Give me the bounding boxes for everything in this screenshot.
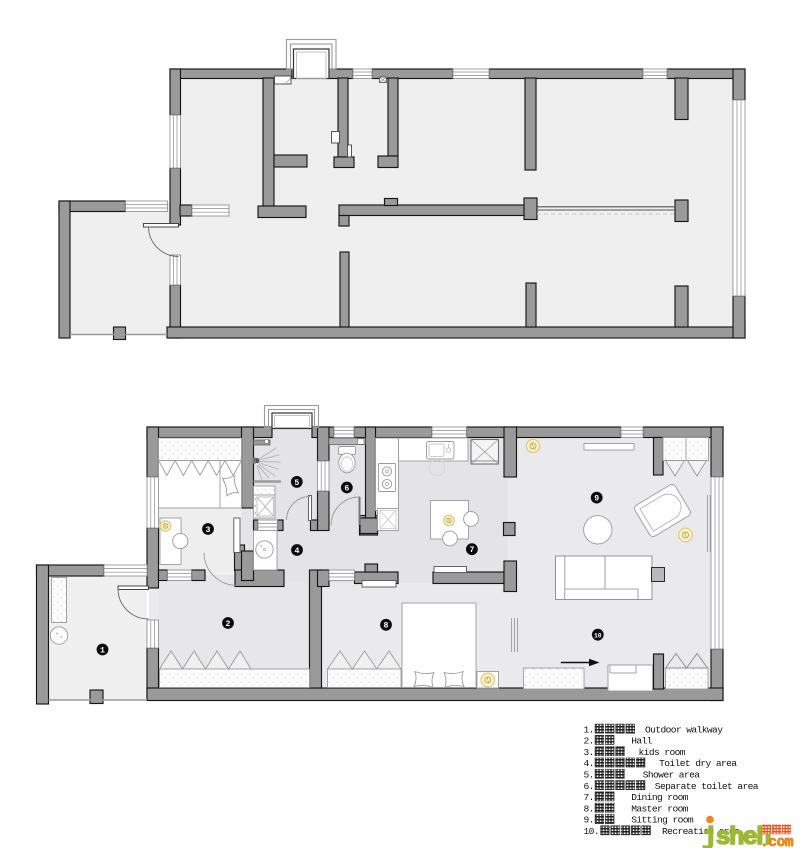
svg-text:9.: 9. (584, 815, 594, 826)
svg-text:8.: 8. (584, 803, 594, 814)
svg-text:6.: 6. (584, 781, 594, 792)
svg-text:7.: 7. (584, 792, 594, 803)
svg-text:3.: 3. (584, 747, 594, 758)
svg-text:4.: 4. (584, 758, 594, 769)
svg-text:Toilet dry area: Toilet dry area (659, 758, 737, 769)
svg-text:3: 3 (206, 526, 211, 535)
svg-text:10: 10 (594, 633, 602, 640)
svg-text:4: 4 (295, 547, 300, 556)
svg-text:9: 9 (594, 495, 599, 504)
svg-text:1: 1 (100, 646, 105, 655)
svg-text:5.: 5. (584, 770, 594, 781)
svg-text:Hall: Hall (631, 736, 652, 747)
svg-text:.com: .com (760, 835, 794, 848)
svg-text:Separate toilet area: Separate toilet area (655, 781, 759, 792)
svg-text:2.: 2. (584, 736, 594, 747)
svg-text:10.: 10. (584, 826, 599, 837)
svg-text:2: 2 (226, 620, 231, 629)
svg-text:Master room: Master room (631, 803, 689, 814)
svg-text:Dining room: Dining room (631, 792, 689, 803)
svg-text:7: 7 (469, 546, 474, 555)
svg-text:Sitting room: Sitting room (631, 815, 694, 826)
svg-text:kids room: kids room (639, 747, 686, 758)
svg-text:1.: 1. (584, 724, 594, 735)
svg-text:5: 5 (294, 479, 299, 488)
svg-text:Shower area: Shower area (643, 770, 701, 781)
svg-text:Outdoor walkway: Outdoor walkway (645, 724, 723, 735)
svg-text:6: 6 (344, 484, 349, 493)
svg-text:8: 8 (384, 622, 389, 631)
